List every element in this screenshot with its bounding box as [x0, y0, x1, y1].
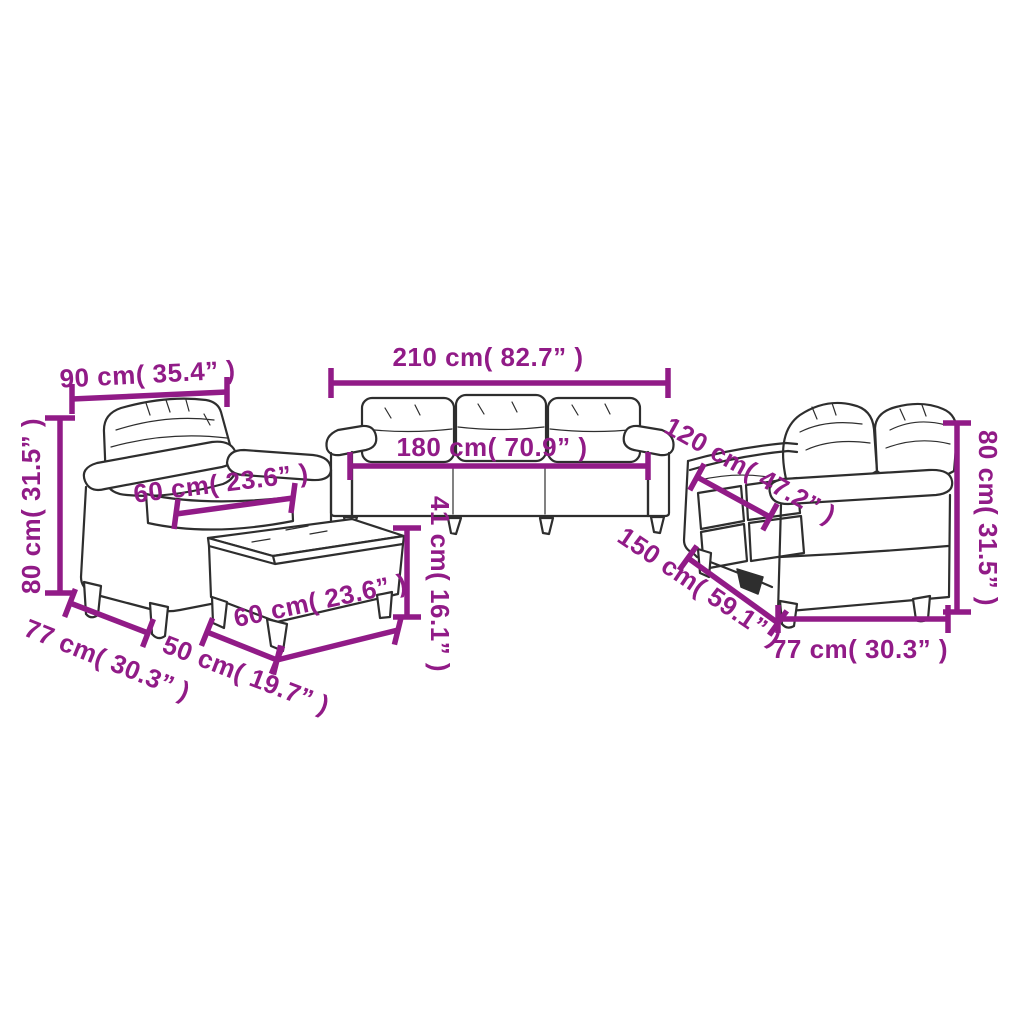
dimension-sofa3-width: 210 cm( 82.7” )	[331, 342, 668, 398]
sofa-set-diagram-canvas: 90 cm( 35.4” ) 80 cm( 31.5” ) 60 cm( 23.…	[0, 0, 1024, 1024]
dimension-label: 180 cm( 70.9” )	[396, 432, 587, 462]
dimension-line	[70, 603, 148, 633]
dimension-sofa2-width: 150 cm( 59.1” )	[612, 521, 787, 653]
dimension-line	[277, 630, 398, 660]
dimension-label: 41 cm( 16.1” )	[425, 496, 455, 672]
dimension-label: 210 cm( 82.7” )	[392, 342, 583, 372]
dimension-label: 77 cm( 30.3” )	[772, 634, 948, 664]
sofa3-base	[352, 466, 648, 516]
dimension-label: 90 cm( 35.4” )	[59, 354, 236, 393]
dimension-label: 150 cm( 59.1” )	[612, 521, 787, 653]
dimension-label: 80 cm( 31.5” )	[16, 418, 46, 594]
sofa2-center-leg	[737, 569, 763, 594]
sofa3-right-arm-post	[648, 452, 669, 516]
dimension-line	[72, 392, 227, 399]
armchair-legs	[84, 582, 168, 638]
dimension-label: 80 cm( 31.5” )	[973, 430, 1003, 606]
diagram-page: 90 cm( 35.4” ) 80 cm( 31.5” ) 60 cm( 23.…	[0, 0, 1024, 1024]
dimension-armchair-height: 80 cm( 31.5” )	[16, 418, 75, 594]
dimension-footstool-depth: 50 cm( 19.7” )	[159, 618, 334, 720]
